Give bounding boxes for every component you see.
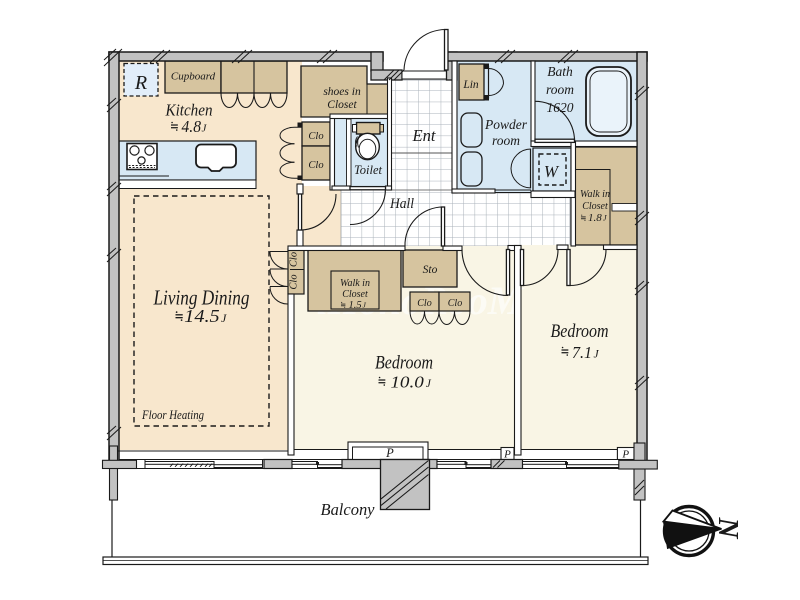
svg-text:Cupboard: Cupboard [171,71,216,83]
svg-text:J: J [221,311,227,325]
svg-text:Closet: Closet [342,289,368,300]
svg-text:Closet: Closet [582,201,608,212]
svg-text:1620: 1620 [547,100,574,115]
svg-text:Walk in: Walk in [580,189,610,200]
svg-text:1.8: 1.8 [588,212,602,224]
svg-text:Closet: Closet [327,99,357,111]
svg-text:Balcony: Balcony [321,500,376,519]
svg-text:Clo: Clo [417,298,431,309]
svg-text:J: J [426,378,432,390]
svg-text:10.0: 10.0 [390,373,424,392]
svg-text:Bath: Bath [547,64,573,79]
svg-text:Toilet: Toilet [354,163,383,177]
svg-text:room: room [546,82,574,97]
svg-text:14.5: 14.5 [184,306,220,326]
svg-text:Bedroom: Bedroom [551,322,609,342]
svg-text:Hall: Hall [389,196,414,212]
svg-text:room: room [492,133,520,148]
svg-text:Walk in: Walk in [340,278,370,289]
svg-text:Sto: Sto [423,264,438,276]
svg-text:N: N [712,517,744,540]
svg-text:Lin: Lin [462,79,479,91]
svg-text:1.5: 1.5 [349,300,362,311]
svg-text:P: P [503,449,511,461]
svg-text:Ent: Ent [412,126,437,145]
svg-text:Clo: Clo [308,160,323,171]
svg-text:J: J [594,349,600,361]
svg-text:P: P [385,446,394,460]
svg-text:7.1: 7.1 [572,343,592,362]
svg-text:Clo: Clo [448,298,462,309]
svg-text:R: R [134,72,147,94]
svg-text:W: W [544,162,560,181]
svg-text:Powder: Powder [484,117,528,132]
svg-text:J: J [603,214,607,223]
svg-text:Bedroom: Bedroom [375,354,433,374]
svg-text:4.8: 4.8 [182,117,202,136]
svg-text:Clo: Clo [289,274,300,289]
svg-text:P: P [621,449,629,461]
svg-text:Clo: Clo [308,131,323,142]
svg-text:shoes in: shoes in [323,86,361,98]
svg-text:Floor Heating: Floor Heating [141,408,204,422]
svg-text:Clo: Clo [289,252,300,267]
